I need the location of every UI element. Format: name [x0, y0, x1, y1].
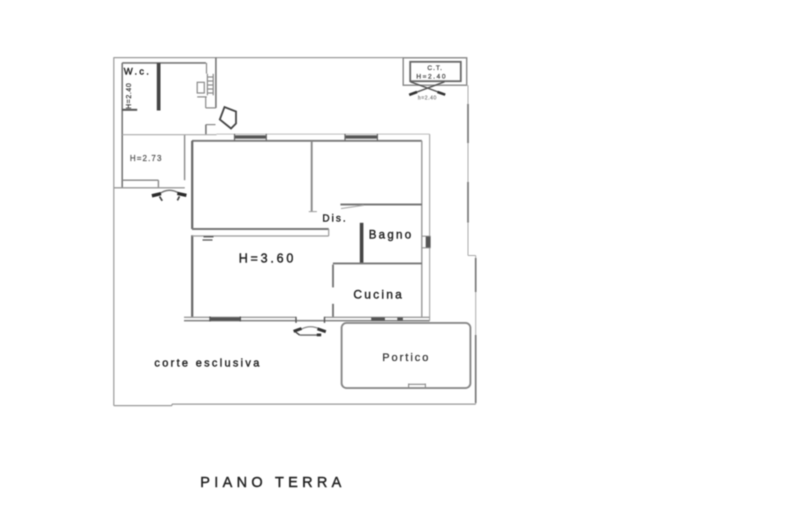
svg-text:PIANO TERRA: PIANO TERRA [200, 475, 345, 491]
svg-text:Dis.: Dis. [322, 214, 347, 225]
svg-text:C.T.: C.T. [427, 65, 443, 72]
svg-text:H=2.40: H=2.40 [126, 83, 133, 109]
svg-text:corte esclusiva: corte esclusiva [154, 358, 261, 370]
svg-text:H=2.73: H=2.73 [130, 154, 163, 163]
svg-text:Portico: Portico [382, 352, 430, 364]
svg-text:W.c.: W.c. [124, 67, 151, 78]
svg-text:h=2.40: h=2.40 [418, 95, 437, 101]
svg-text:H=3.60: H=3.60 [239, 252, 296, 266]
svg-text:Cucina: Cucina [353, 288, 404, 302]
svg-text:Bagno: Bagno [369, 230, 414, 242]
svg-text:H=2.40: H=2.40 [416, 74, 447, 81]
